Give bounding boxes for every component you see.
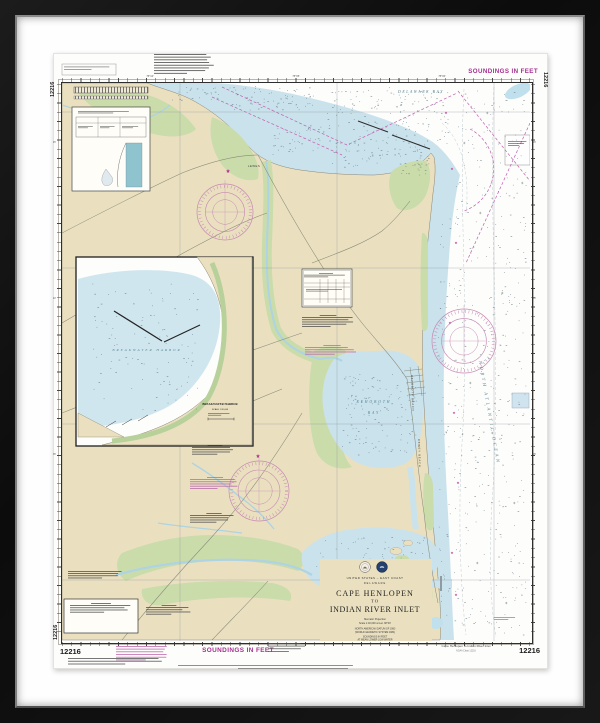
speck: [387, 143, 388, 144]
speck: [441, 113, 443, 114]
speck: [310, 130, 311, 131]
speck: [413, 165, 414, 166]
speck: [443, 102, 444, 103]
speck: [513, 109, 514, 110]
speck: [500, 399, 502, 400]
speck: [313, 150, 314, 151]
speck: [491, 380, 492, 381]
speck: [350, 383, 351, 384]
speck: [515, 379, 517, 380]
speck: [469, 617, 470, 618]
speck: [491, 183, 492, 184]
speck: [304, 275, 345, 276]
speck: [354, 408, 355, 409]
speck: [414, 165, 416, 166]
speck: [439, 549, 440, 550]
speck: [292, 96, 293, 97]
speck: [234, 109, 235, 110]
speck: [335, 92, 336, 93]
speck: [208, 413, 229, 414]
speck: [488, 125, 490, 126]
speck: [347, 435, 348, 436]
speck: [162, 330, 163, 331]
commerce-seal: [360, 562, 371, 573]
speck: [352, 403, 353, 404]
speck: [93, 284, 94, 285]
speck: [323, 557, 324, 558]
speck: [259, 89, 260, 90]
speck: [495, 539, 496, 540]
speck: [442, 131, 443, 132]
speck: [445, 432, 447, 433]
speck: [463, 278, 464, 279]
speck: [313, 96, 314, 97]
speck: [516, 384, 517, 385]
speck: [362, 159, 363, 160]
speck: [400, 156, 401, 157]
speck: [450, 513, 451, 514]
speck: [101, 304, 103, 305]
speck: [352, 108, 353, 109]
speck: [208, 415, 221, 416]
speck: [393, 549, 395, 550]
speck: [493, 307, 495, 308]
speck: [459, 551, 460, 552]
speck: [319, 273, 333, 274]
speck: [415, 387, 416, 388]
speck: [272, 110, 273, 111]
speck: [350, 376, 351, 377]
speck: [192, 353, 193, 354]
speck: [413, 115, 414, 116]
speck: [306, 98, 307, 99]
speck: [352, 110, 353, 111]
framed-nautical-chart: DELAWARE BAY NORTH ATLANTIC OCEAN REHOBO…: [0, 0, 600, 723]
speck: [476, 522, 477, 523]
speck: [507, 401, 509, 402]
speck: [441, 601, 442, 602]
speck: [463, 588, 464, 589]
speck: [505, 506, 507, 507]
speck: [466, 527, 467, 528]
speck: [501, 216, 502, 217]
speck: [192, 454, 217, 455]
speck: [477, 404, 478, 405]
speck: [494, 619, 508, 620]
speck: [278, 128, 279, 129]
speck: [406, 136, 408, 137]
speck: [354, 143, 356, 144]
speck: [308, 129, 310, 130]
speck: [91, 603, 111, 604]
speck: [239, 106, 241, 107]
speck: [397, 107, 398, 108]
speck: [445, 132, 446, 133]
speck: [334, 101, 336, 102]
speck: [190, 484, 231, 485]
speck: [427, 156, 428, 157]
speck: [351, 396, 352, 397]
speck: [495, 224, 496, 225]
speck: [354, 119, 355, 120]
speck: [458, 184, 459, 185]
speck: [491, 334, 492, 335]
speck: [353, 542, 354, 543]
speck: [509, 424, 510, 425]
small-inset: [72, 107, 150, 191]
speck: [370, 156, 371, 157]
speck: [415, 131, 416, 132]
speck: [390, 113, 391, 114]
speck: [373, 448, 374, 449]
speck: [516, 140, 517, 141]
speck: [522, 585, 523, 586]
speck: [207, 477, 223, 478]
speck: [196, 310, 198, 311]
speck: [405, 163, 407, 164]
speck: [455, 294, 456, 295]
speck: [508, 112, 509, 113]
speck: [381, 425, 383, 426]
speck: [503, 351, 505, 352]
speck: [506, 193, 507, 194]
speck: [143, 317, 144, 318]
speck: [353, 428, 354, 429]
speck: [372, 386, 374, 387]
speck: [502, 552, 503, 553]
speck: [168, 362, 169, 363]
speck: [306, 291, 328, 292]
speck: [279, 134, 280, 135]
speck: [387, 436, 388, 437]
speck: [418, 169, 419, 170]
speck: [190, 515, 233, 516]
speck: [489, 341, 490, 342]
speck: [518, 283, 519, 284]
speck: [510, 215, 512, 216]
speck: [362, 539, 363, 540]
speck: [462, 214, 463, 215]
speck: [115, 338, 116, 339]
speck: [278, 150, 279, 151]
speck: [255, 86, 256, 87]
speck: [336, 143, 338, 144]
speck: [519, 625, 520, 626]
speck: [487, 130, 488, 131]
speck: [428, 159, 430, 160]
speck: [482, 195, 483, 196]
speck: [294, 90, 296, 91]
label-delaware-bay: DELAWARE BAY: [397, 90, 444, 94]
speck: [299, 133, 300, 134]
speck: [513, 587, 514, 588]
speck: [122, 128, 133, 129]
speck: [401, 404, 402, 405]
speck: [455, 621, 457, 622]
speck: [443, 247, 444, 248]
speck: [472, 419, 474, 420]
speck: [114, 345, 115, 346]
speck: [475, 468, 477, 469]
speck: [358, 379, 359, 380]
speck: [232, 104, 234, 105]
speck: [364, 150, 365, 151]
speck: [302, 319, 348, 320]
speck: [421, 164, 422, 165]
speck: [439, 527, 440, 528]
speck: [420, 158, 421, 159]
speck: [515, 546, 516, 547]
speck: [358, 144, 359, 145]
speck: [418, 123, 419, 124]
title-state: DELAWARE: [364, 581, 386, 585]
speck: [310, 126, 312, 127]
speck: [159, 323, 160, 324]
speck: [511, 305, 513, 306]
speck: [348, 164, 350, 165]
speck: [292, 140, 293, 141]
speck: [440, 323, 441, 324]
speck: [465, 346, 467, 347]
speck: [507, 178, 508, 179]
speck: [345, 156, 346, 157]
speck: [518, 511, 520, 512]
speck: [332, 163, 333, 164]
title-datum2: (WORLD GEODETIC SYSTEM 1984): [355, 631, 395, 634]
speck: [465, 361, 466, 362]
speck: [524, 230, 525, 231]
speck: [500, 534, 502, 535]
tide-table-box: [302, 269, 352, 307]
speck: [122, 126, 138, 127]
speck: [380, 388, 381, 389]
speck: [377, 163, 378, 164]
speck: [320, 315, 337, 316]
speck: [457, 417, 458, 418]
speck: [157, 369, 158, 370]
speck: [443, 575, 444, 576]
speck: [505, 287, 507, 288]
speck: [465, 320, 466, 321]
speck: [456, 390, 458, 391]
speck: [190, 520, 228, 521]
speck: [164, 329, 166, 330]
speck: [104, 398, 105, 399]
speck: [474, 247, 475, 248]
speck: [191, 88, 192, 89]
speck: [94, 294, 96, 295]
speck: [477, 160, 478, 161]
speck: [191, 365, 192, 366]
speck: [488, 359, 490, 360]
speck: [401, 434, 402, 435]
speck: [426, 118, 427, 119]
speck: [498, 191, 499, 192]
speck: [503, 229, 504, 230]
speck: [484, 554, 485, 555]
speck: [402, 373, 403, 374]
speck: [96, 357, 97, 358]
speck: [460, 285, 462, 286]
speck: [250, 104, 252, 105]
speck: [456, 217, 457, 218]
speck: [119, 360, 121, 361]
speck: [400, 112, 401, 113]
speck: [215, 92, 217, 93]
speck: [443, 461, 444, 462]
speck: [409, 129, 410, 130]
speck: [386, 142, 387, 143]
speck: [446, 454, 447, 455]
speck: [374, 419, 376, 420]
speck: [68, 571, 122, 572]
speck: [418, 163, 419, 164]
speck: [504, 633, 505, 634]
speck: [371, 153, 373, 154]
speck: [479, 426, 480, 427]
speck: [190, 517, 228, 518]
speck: [467, 212, 469, 213]
speck: [372, 379, 374, 380]
speck: [506, 156, 507, 157]
speck: [477, 313, 478, 314]
speck: [439, 468, 440, 469]
speck: [348, 405, 349, 406]
speck: [365, 442, 367, 443]
speck: [476, 506, 478, 507]
speck: [513, 459, 514, 460]
speck: [459, 236, 460, 237]
speck: [364, 414, 365, 415]
speck: [507, 311, 508, 312]
speck: [521, 369, 522, 370]
speck: [523, 333, 524, 334]
speck: [490, 297, 492, 298]
speck: [304, 277, 328, 278]
speck: [217, 98, 219, 99]
speck: [233, 88, 235, 89]
speck: [289, 144, 291, 145]
speck: [278, 103, 280, 104]
speck: [133, 304, 135, 305]
speck: [471, 319, 472, 320]
speck: [504, 94, 505, 95]
speck: [371, 96, 373, 97]
speck: [440, 308, 441, 309]
speck: [512, 453, 513, 454]
speck: [310, 139, 311, 140]
speck: [484, 132, 485, 133]
speck: [462, 360, 464, 361]
speck: [429, 110, 430, 111]
speck: [446, 307, 447, 308]
speck: [503, 597, 504, 598]
speck: [488, 591, 489, 592]
speck: [68, 578, 102, 579]
speck: [190, 481, 237, 482]
speck: [391, 537, 393, 538]
speck: [491, 386, 492, 387]
speck: [496, 415, 497, 416]
speck: [274, 136, 276, 137]
speck: [419, 170, 420, 171]
speck: [302, 324, 346, 325]
speck: [349, 151, 350, 152]
speck: [502, 507, 504, 508]
speck: [370, 397, 371, 398]
speck: [379, 441, 380, 442]
speck: [295, 132, 296, 133]
speck: [394, 94, 395, 95]
speck: [455, 360, 457, 361]
speck: [142, 379, 143, 380]
speck: [404, 110, 405, 111]
speck: [379, 451, 380, 452]
speck: [508, 145, 519, 146]
speck: [401, 391, 402, 392]
speck: [517, 543, 518, 544]
speck: [392, 557, 393, 558]
speck: [273, 101, 274, 102]
speck: [495, 529, 497, 530]
speck: [401, 558, 402, 559]
speck: [470, 362, 471, 363]
speck: [348, 548, 349, 549]
speck: [425, 97, 426, 98]
speck: [418, 102, 419, 103]
speck: [510, 268, 511, 269]
speck: [455, 508, 456, 509]
speck: [197, 299, 199, 300]
speck: [428, 125, 430, 126]
speck: [501, 435, 503, 436]
speck: [510, 561, 512, 562]
speck: [70, 612, 104, 613]
speck: [170, 293, 171, 294]
speck: [510, 294, 511, 295]
speck: [358, 455, 360, 456]
speck: [473, 436, 474, 437]
speck: [478, 439, 480, 440]
speck: [503, 303, 504, 304]
speck: [419, 543, 421, 544]
speck: [485, 405, 486, 406]
speck: [434, 111, 435, 112]
speck: [400, 397, 401, 398]
inset-scale: SCALE 1:20,000: [212, 408, 229, 411]
inset-title: BREAKWATER HARBOR: [202, 402, 238, 406]
speck: [208, 93, 209, 94]
speck: [284, 129, 285, 130]
speck: [338, 112, 339, 113]
speck: [467, 98, 468, 99]
speck: [260, 91, 261, 92]
speck: [398, 417, 399, 418]
title-region: UNITED STATES – EAST COAST: [347, 576, 404, 580]
speck: [463, 434, 464, 435]
speck: [457, 224, 458, 225]
speck: [169, 385, 171, 386]
speck: [489, 450, 491, 451]
speck: [511, 559, 512, 560]
title-line1: CAPE HENLOPEN: [336, 589, 414, 598]
speck: [489, 572, 490, 573]
speck: [382, 554, 383, 555]
speck: [305, 354, 335, 355]
speck: [211, 99, 212, 100]
speck: [485, 616, 486, 617]
speck: [353, 400, 354, 401]
